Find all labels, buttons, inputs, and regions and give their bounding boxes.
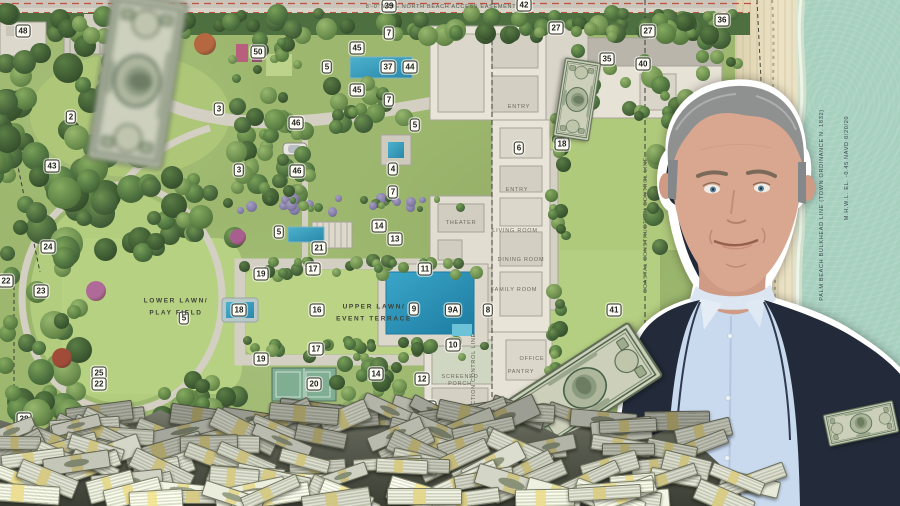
money-stack	[387, 488, 462, 505]
flower-bed	[236, 44, 248, 62]
flower-bed	[252, 44, 262, 62]
water-feature	[222, 298, 258, 322]
money-pile	[0, 398, 755, 506]
lap-pool	[350, 57, 412, 78]
money-stack	[598, 418, 657, 435]
money-stack	[515, 489, 575, 506]
money-stack	[376, 458, 429, 476]
garden-lawn-panel	[266, 54, 292, 76]
collage-scene: 4850233464643242223252228302939422727363…	[0, 0, 900, 506]
shoreline	[772, 0, 802, 506]
fountain-court	[381, 135, 411, 165]
car-graphic	[283, 143, 307, 155]
money-stack	[0, 436, 41, 450]
gatehouse-roof	[6, 26, 20, 36]
sport-court	[272, 368, 336, 401]
garden-pool	[288, 227, 324, 242]
money-stack	[129, 488, 184, 506]
main-pool	[378, 264, 488, 346]
